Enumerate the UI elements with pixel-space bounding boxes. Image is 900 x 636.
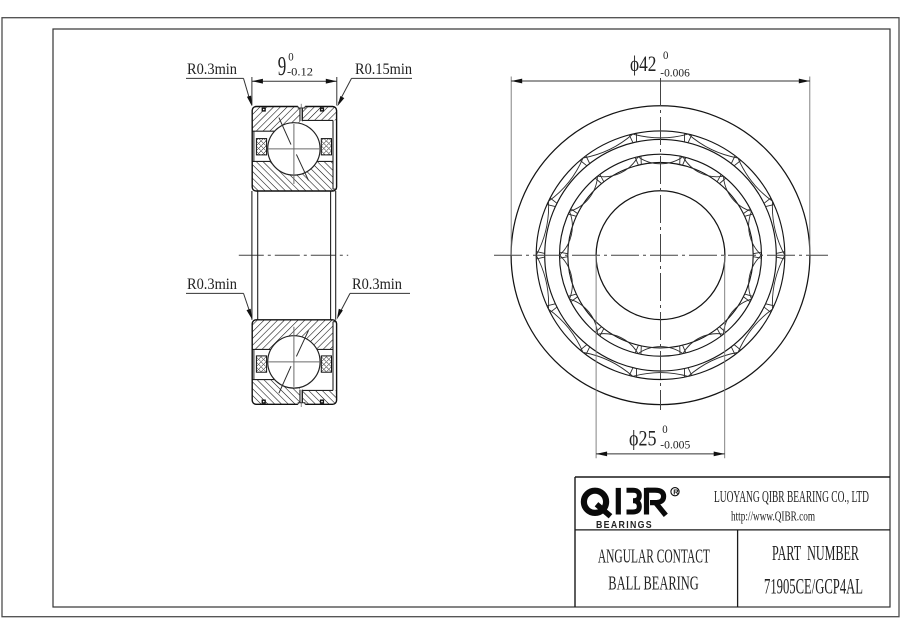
svg-text:ANGULAR CONTACT: ANGULAR CONTACT (598, 547, 710, 568)
svg-text:PART NUMBER: PART NUMBER (772, 541, 859, 565)
svg-text:ϕ42: ϕ42 (630, 51, 657, 76)
svg-text:0: 0 (288, 52, 294, 64)
svg-text:R: R (673, 488, 679, 497)
svg-text:R0.3min: R0.3min (352, 275, 402, 293)
svg-text:-0.005: -0.005 (660, 439, 690, 451)
svg-text:R0.3min: R0.3min (187, 275, 237, 293)
svg-text:0: 0 (663, 50, 669, 62)
svg-text:R0.15min: R0.15min (355, 60, 412, 78)
svg-text:BEARINGS: BEARINGS (596, 520, 653, 531)
svg-text:9: 9 (278, 51, 287, 81)
svg-text:-0.006: -0.006 (660, 67, 690, 79)
svg-text:BALL BEARING: BALL BEARING (608, 573, 699, 594)
svg-text:ϕ25: ϕ25 (629, 426, 657, 451)
svg-text:LUOYANG QIBR BEARING CO., LTD: LUOYANG QIBR BEARING CO., LTD (714, 487, 869, 506)
svg-text:71905CE/GCP4AL: 71905CE/GCP4AL (764, 574, 863, 599)
svg-text:R0.3min: R0.3min (187, 60, 237, 78)
svg-text:http://www.QIBR.com: http://www.QIBR.com (731, 510, 815, 525)
svg-text:-0.12: -0.12 (287, 67, 313, 79)
svg-text:0: 0 (662, 424, 668, 436)
